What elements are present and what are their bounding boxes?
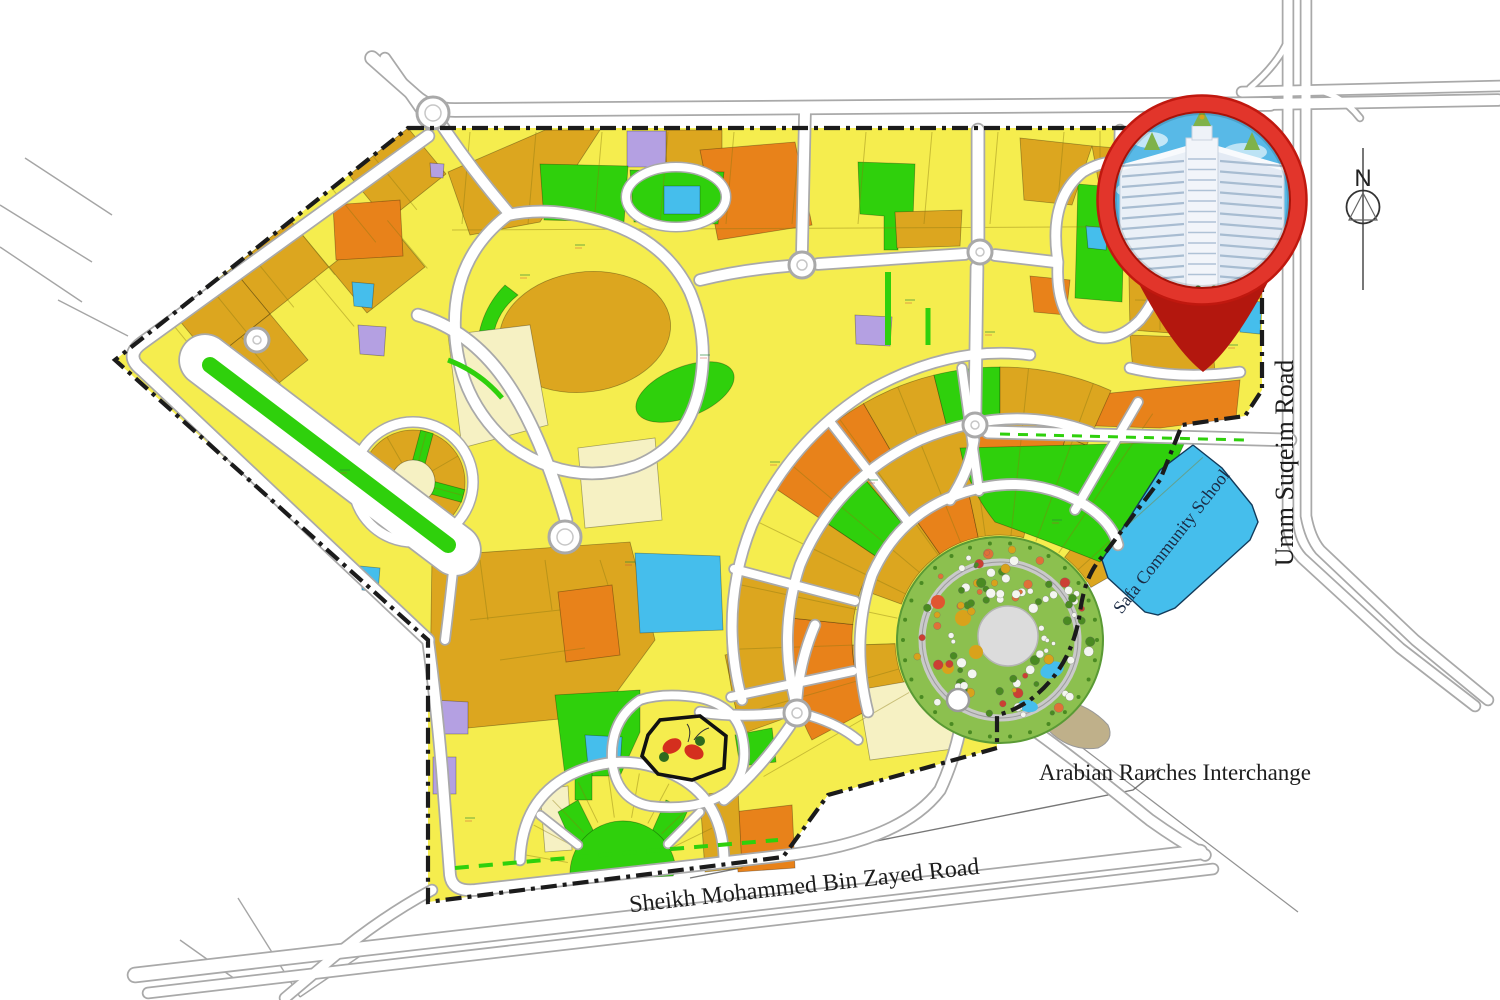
garden-dot [1067, 657, 1074, 664]
garden-tree-dot [968, 730, 972, 734]
garden-dot [1022, 673, 1027, 678]
roundabout-island [971, 421, 979, 429]
parcel [333, 200, 403, 260]
parcel [578, 438, 662, 528]
garden-dot [950, 652, 957, 659]
garden-dot [1027, 588, 1033, 594]
garden-tree-dot [901, 638, 905, 642]
garden-dot [1035, 598, 1042, 605]
parcel [627, 131, 666, 167]
podium-greenery [1275, 286, 1282, 293]
roundabout-island [976, 248, 984, 256]
garden-tree-dot [1047, 554, 1051, 558]
garden-dot [1012, 590, 1020, 598]
garden-tree-dot [1028, 730, 1032, 734]
garden-dot [1008, 546, 1016, 554]
garden-dot [938, 574, 943, 579]
garden-dot [985, 550, 990, 555]
garden-dot [1036, 557, 1044, 565]
garden-tree-dot [988, 542, 992, 546]
garden-dot [996, 687, 1004, 695]
garden-dot [1045, 581, 1052, 588]
garden-dot [1021, 712, 1026, 717]
parcel [430, 163, 444, 178]
garden-dot [1054, 703, 1063, 712]
road [1242, 86, 1500, 92]
garden-dot [1052, 642, 1056, 646]
garden-dot [1060, 578, 1070, 588]
garden-tree-dot [1095, 638, 1099, 642]
garden-dot [1066, 693, 1074, 701]
garden-tree-dot [1008, 735, 1012, 739]
garden-tree-dot [1077, 581, 1081, 585]
garden-dot [1050, 591, 1058, 599]
label-arabian-ranches-interchange: Arabian Ranches Interchange [1039, 760, 1311, 785]
road [802, 112, 805, 250]
garden-dot [914, 653, 921, 660]
garden-tree-dot [933, 566, 937, 570]
garden-dot [1029, 604, 1039, 614]
garden-dot [919, 634, 925, 640]
garden-dot [1072, 613, 1077, 618]
garden-dot [991, 580, 998, 587]
garden-tree-dot [903, 658, 907, 662]
podium-arch [1270, 299, 1276, 305]
garden-dot [1012, 688, 1017, 693]
garden-dot [1063, 617, 1072, 626]
garden-dot [933, 660, 943, 670]
garden-dot [959, 565, 965, 571]
master-plan-screenshot: N Sheikh Mohammed Bin Zayed Road Arabian… [0, 0, 1500, 1000]
garden-tree-dot [1093, 618, 1097, 622]
garden-dot [1002, 574, 1010, 582]
garden-dot [977, 589, 982, 594]
garden-dot [1026, 665, 1035, 674]
garden-dot [1044, 648, 1049, 653]
garden-dot [1024, 580, 1033, 589]
garden-dot [1084, 647, 1094, 657]
parcel [895, 210, 962, 248]
garden-dot [934, 612, 940, 618]
garden-dot [996, 590, 1004, 598]
garden-dot [1001, 564, 1010, 573]
parcel [352, 282, 374, 308]
garden-dot [1039, 625, 1045, 631]
garden-dot [966, 555, 971, 560]
parcel [635, 553, 723, 633]
garden-dot [1045, 638, 1049, 642]
garden-tree-dot [950, 722, 954, 726]
garden-dot [967, 600, 974, 607]
garden-dot [951, 639, 955, 643]
parcel [358, 325, 386, 356]
garden-tree-dot [1063, 710, 1067, 714]
garden-tree-dot [1047, 722, 1051, 726]
garden-dot [1034, 681, 1039, 686]
garden-dot [1050, 711, 1055, 716]
garden-tree-dot [1028, 546, 1032, 550]
garden-tree-dot [903, 618, 907, 622]
garden-tree-dot [1087, 678, 1091, 682]
garden-tree-dot [950, 554, 954, 558]
garden-dot [957, 658, 967, 668]
garden-dot [1010, 675, 1017, 682]
garden-dot [946, 660, 953, 667]
road [995, 255, 1055, 262]
garden-dot [1068, 594, 1076, 602]
garden-tree-dot [920, 581, 924, 585]
garden-dot [957, 602, 964, 609]
garden-dot [1044, 655, 1054, 665]
roundabout-island [792, 708, 802, 718]
garden-tree-dot [920, 695, 924, 699]
garden-tree-dot [1063, 566, 1067, 570]
butterfly-garden-parcel [642, 716, 726, 780]
garden-tree-dot [1087, 599, 1091, 603]
garden-dot [934, 699, 941, 706]
garden-dot [987, 568, 996, 577]
garden-dot [1065, 586, 1073, 594]
garden-tree-dot [1077, 695, 1081, 699]
site-plan-map: N Sheikh Mohammed Bin Zayed Road Arabian… [0, 0, 1500, 1000]
roundabout-island [253, 336, 261, 344]
podium-greenery [1267, 289, 1274, 296]
garden-tree-dot [1008, 542, 1012, 546]
garden-dot [968, 669, 977, 678]
garden-dot [958, 668, 963, 673]
garden-dot [958, 587, 964, 593]
garden-dot [1010, 556, 1019, 565]
compass-label: N [1354, 165, 1371, 192]
roundabout-island [425, 105, 441, 121]
road [975, 267, 977, 412]
garden-tree-dot [909, 678, 913, 682]
garden-dot [976, 578, 986, 588]
garden-tree-dot [988, 735, 992, 739]
garden-dot [986, 589, 996, 599]
garden-dot [974, 562, 979, 567]
garden-tree-dot [909, 599, 913, 603]
garden-tree-dot [968, 546, 972, 550]
garden-tree-dot [1093, 658, 1097, 662]
garden-dot [1000, 700, 1007, 707]
roundabout-island [557, 529, 573, 545]
roundabout-island [797, 260, 807, 270]
north-arrow: N [1347, 148, 1380, 290]
garden-roundabout [947, 689, 969, 711]
label-umm-suqeim-road: Umm Suqeim Road [1270, 360, 1299, 567]
garden-dot [1043, 596, 1049, 602]
garden-dot [968, 608, 976, 616]
garden-dot [948, 633, 954, 639]
garden-dot [986, 710, 993, 717]
garden-tree-dot [933, 710, 937, 714]
road [700, 712, 783, 715]
garden-dot [923, 604, 931, 612]
parcel [664, 186, 700, 214]
garden-dot [934, 622, 941, 629]
garden-dot [1036, 650, 1044, 658]
garden-dot [1085, 637, 1095, 647]
